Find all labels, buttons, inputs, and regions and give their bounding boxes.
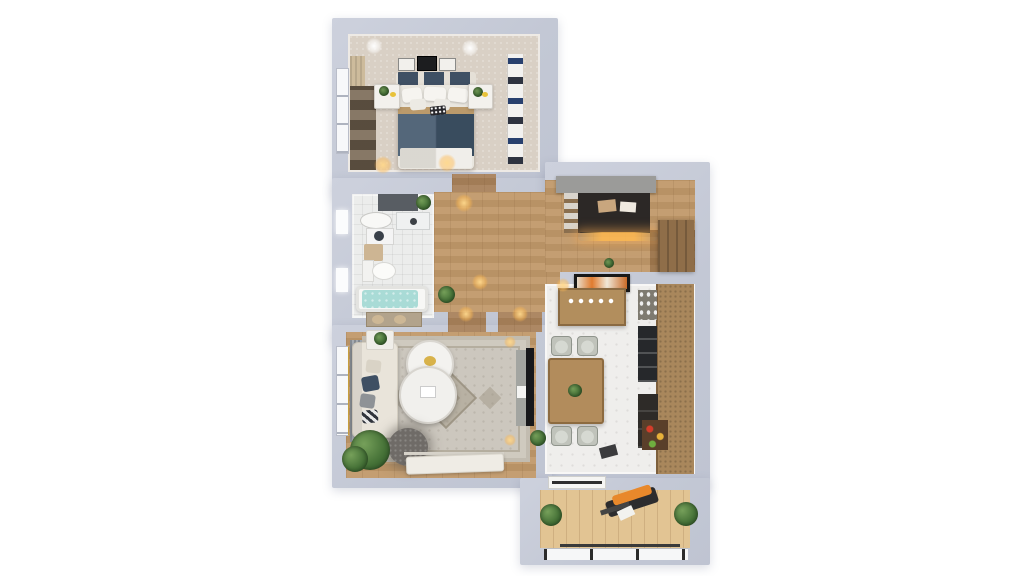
bedroom-bookshelf — [507, 54, 523, 164]
bedroom-ceiling-light-right — [438, 154, 456, 172]
sideboard-light — [556, 278, 570, 292]
entry-console-box — [597, 199, 616, 213]
sconce-left-glow — [366, 38, 382, 54]
sconce-right-glow — [462, 40, 478, 56]
tv — [526, 348, 534, 426]
entry-console-shelves — [564, 193, 578, 233]
kitchen-plant — [530, 430, 546, 446]
wall-art-frame-left — [398, 58, 415, 71]
sofa-pillow-navy — [361, 375, 380, 393]
toilet-bowl — [372, 262, 396, 280]
bathroom-faucet — [410, 218, 417, 225]
bathroom-window-upper — [336, 210, 348, 234]
sofa-pillow-gray — [359, 393, 376, 409]
side-table-plant — [374, 332, 387, 345]
floor-plan-canvas[interactable] — [0, 0, 1024, 576]
floor-plan-page — [0, 0, 1024, 576]
bed-pillow-right — [447, 87, 469, 104]
wall-art-frame-center — [417, 56, 437, 71]
bedroom-window — [336, 68, 349, 154]
balcony-glazing — [544, 548, 688, 560]
washing-machine-door — [374, 231, 384, 241]
kitchen-door-light — [512, 306, 528, 322]
bathroom-counter-plant — [416, 195, 431, 210]
sofa-pillow-cream — [365, 359, 381, 373]
candle-light-top — [504, 336, 516, 348]
coffee-table-tray — [420, 386, 436, 398]
wall-art-frame-right — [439, 58, 456, 71]
coffee-table-gold-decor — [424, 356, 436, 366]
towel — [364, 244, 383, 261]
bathroom-sink — [360, 212, 392, 229]
vanity-bowl-left — [372, 315, 384, 324]
bathroom-counter — [378, 194, 418, 211]
food-crates — [642, 420, 668, 450]
bathroom-window-lower — [336, 268, 348, 292]
vanity-bowl-right — [394, 315, 406, 324]
bedroom-wardrobe — [350, 86, 376, 170]
entry-small-plant — [604, 258, 614, 268]
living-plant-small — [342, 446, 368, 472]
dining-chair-bottom-right — [577, 426, 598, 446]
sideboard-dishes — [566, 296, 616, 306]
bed-checkered-pillow — [430, 105, 447, 116]
hallway-light-upper — [455, 194, 473, 212]
dining-chair-top-left — [551, 336, 572, 356]
console-papers — [517, 386, 526, 398]
oven-stack — [638, 326, 657, 382]
sofa-pillow-striped — [361, 409, 378, 423]
balcony-plant-right — [674, 502, 698, 526]
entry-wardrobe — [658, 220, 694, 272]
balcony-plant-left — [540, 504, 562, 526]
entry-under-cabinet-light — [578, 232, 658, 241]
bedroom-door-threshold — [452, 174, 496, 192]
nightstand-left-lamp — [390, 92, 396, 97]
bathtub-water — [362, 290, 418, 308]
dining-chair-top-right — [577, 336, 598, 356]
bedroom-ceiling-light-left — [374, 156, 392, 174]
living-room-window — [336, 346, 349, 436]
entry-bulkhead — [556, 176, 656, 193]
hallway-plant — [438, 286, 455, 303]
dining-centerpiece — [568, 384, 582, 397]
sofa-backrest — [352, 342, 362, 438]
bed-cushion-left — [410, 98, 427, 110]
stove-top — [638, 290, 657, 320]
nightstand-right-lamp — [482, 92, 488, 97]
balcony-glass-line — [560, 544, 680, 547]
living-door-light — [458, 306, 474, 322]
balcony-door-track — [552, 481, 602, 484]
candle-light-bottom — [504, 434, 516, 446]
nightstand-left-plant — [379, 86, 389, 96]
hallway-light-center — [472, 274, 488, 290]
kitchen-sideboard — [558, 288, 626, 326]
entry-console-tray — [620, 201, 637, 212]
bed-throw — [400, 148, 472, 168]
bench-daybed — [406, 453, 505, 474]
dining-chair-bottom-left — [551, 426, 572, 446]
